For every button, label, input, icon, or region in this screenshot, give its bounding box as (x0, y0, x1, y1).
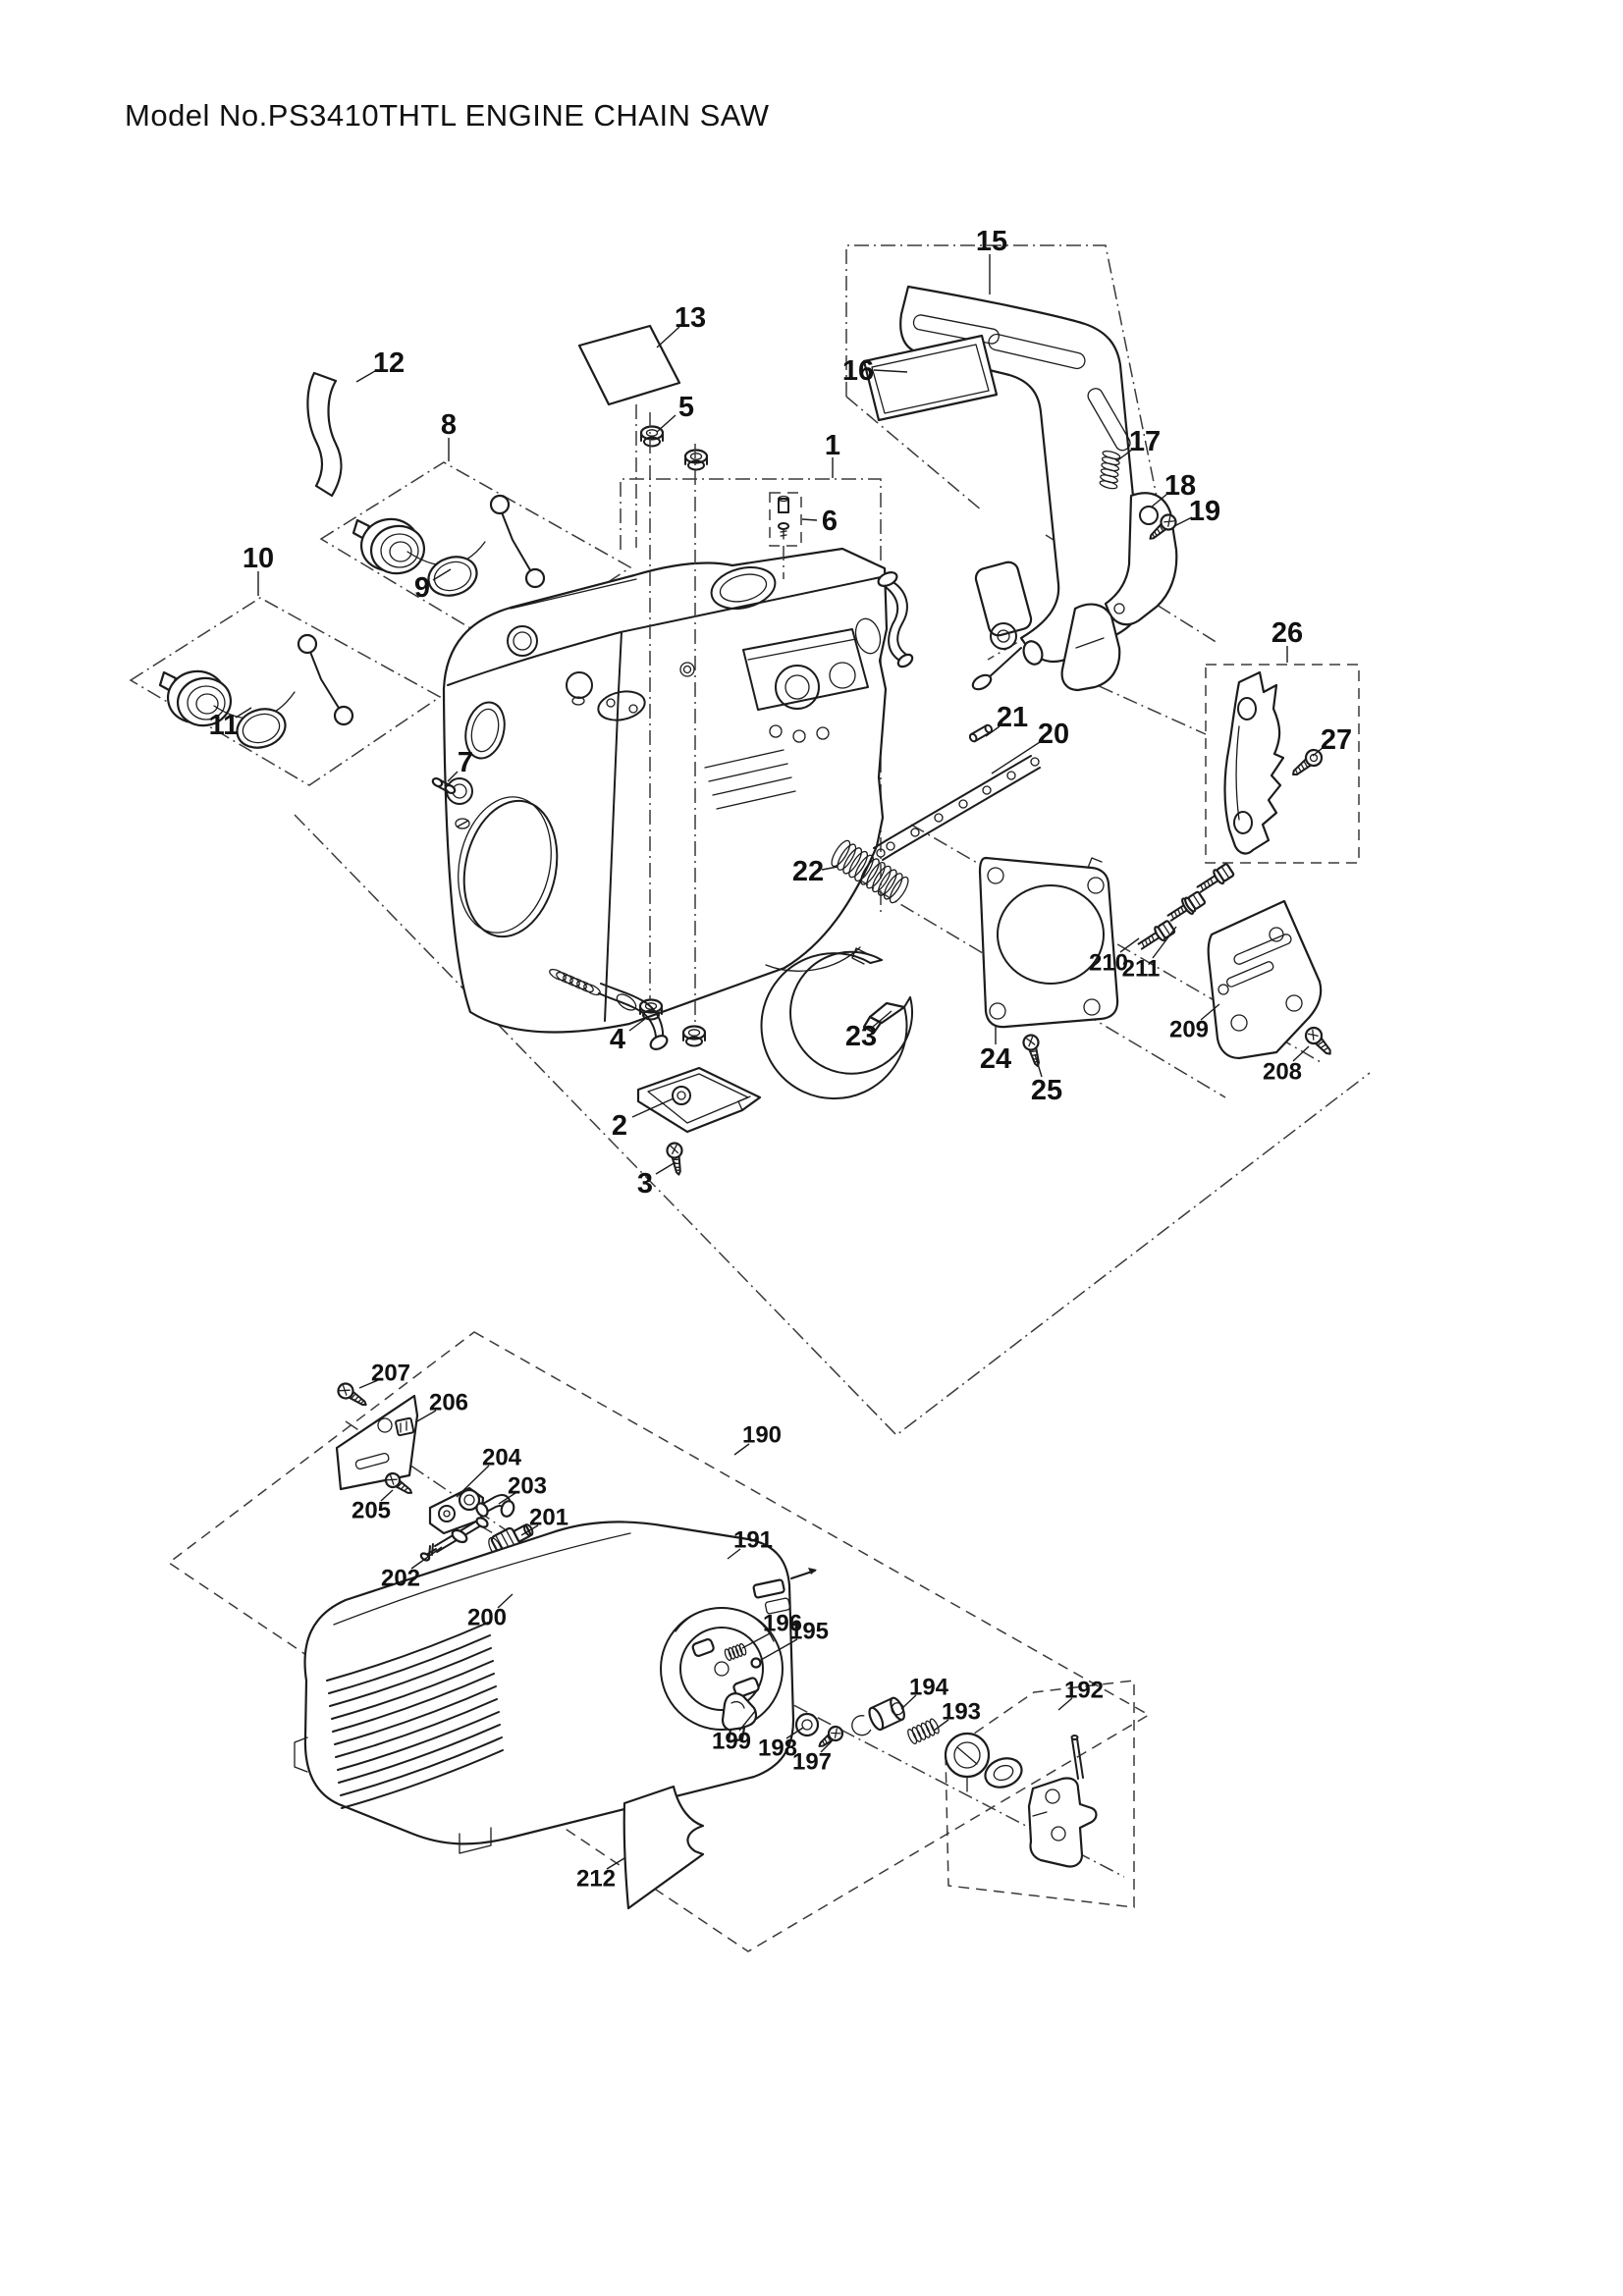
part-label-211: 211 (1122, 955, 1161, 982)
part-leader-5 (657, 415, 676, 432)
clutch-cover-191 (295, 1522, 817, 1853)
part-label-1: 1 (825, 430, 840, 461)
parts-diagram-page: Model No.PS3410THTL ENGINE CHAIN SAW (0, 0, 1623, 2296)
part-label-23: 23 (845, 1021, 877, 1052)
part-label-2: 2 (612, 1110, 627, 1142)
part-label-12: 12 (373, 347, 405, 379)
cover-panel-212 (624, 1787, 703, 1908)
part-label-207: 207 (371, 1360, 410, 1386)
washer-198 (796, 1714, 818, 1735)
part-label-193: 193 (942, 1698, 981, 1725)
part-label-199: 199 (712, 1728, 751, 1754)
part-label-200: 200 (467, 1604, 507, 1630)
part-label-203: 203 (508, 1472, 547, 1499)
part-label-20: 20 (1038, 719, 1069, 750)
part-label-13: 13 (675, 302, 706, 334)
part-label-202: 202 (381, 1565, 420, 1591)
guide-plate-209 (1209, 901, 1322, 1058)
adjuster-plate-206 (337, 1396, 417, 1489)
brake-band-23 (762, 948, 913, 1098)
part-label-196: 196 (763, 1610, 802, 1636)
part-label-24: 24 (980, 1043, 1011, 1075)
spring-193 (906, 1718, 941, 1745)
part-label-5: 5 (678, 392, 694, 423)
part-label-190: 190 (742, 1421, 782, 1448)
part-label-206: 206 (429, 1389, 468, 1415)
part-label-27: 27 (1321, 724, 1352, 756)
part-label-22: 22 (792, 856, 824, 887)
inner-plate-24 (980, 858, 1117, 1027)
ball-195 (752, 1659, 761, 1668)
screw-3 (666, 1142, 685, 1176)
part-label-19: 19 (1189, 496, 1220, 527)
part-label-4: 4 (610, 1024, 625, 1055)
part-label-201: 201 (529, 1504, 568, 1530)
part-label-17: 17 (1129, 426, 1161, 457)
fuel-cap-9 (353, 496, 544, 602)
screw-27 (1288, 747, 1325, 780)
grommet-5b (685, 451, 707, 470)
part-label-25: 25 (1031, 1075, 1062, 1106)
part-label-194: 194 (909, 1674, 949, 1700)
guard-plate-2 (638, 1068, 760, 1132)
screw-25 (1022, 1034, 1045, 1068)
part-label-26: 26 (1271, 617, 1303, 649)
tensioner-192 (946, 1734, 1097, 1866)
part-label-10: 10 (243, 543, 274, 574)
part-label-205: 205 (352, 1497, 391, 1523)
part-label-11: 11 (209, 710, 240, 741)
part-label-197: 197 (792, 1748, 832, 1775)
spike-bumper-26 (1225, 672, 1284, 853)
part-label-198: 198 (758, 1735, 797, 1761)
part-leader-3 (656, 1162, 676, 1174)
diagram-canvas: Model No.PS3410THTL ENGINE CHAIN SAW (0, 0, 1623, 2296)
part-label-21: 21 (997, 702, 1028, 733)
screw-197 (815, 1724, 845, 1751)
grommet-4b (683, 1027, 705, 1046)
part-label-8: 8 (441, 409, 457, 441)
bolt-211b (1195, 863, 1235, 896)
part-label-7: 7 (458, 747, 473, 778)
part-label-6: 6 (822, 506, 838, 537)
page-title: Model No.PS3410THTL ENGINE CHAIN SAW (125, 98, 770, 133)
part-leader-6 (802, 519, 817, 520)
vent-valve-6 (779, 497, 788, 540)
deflector-strip-12 (307, 373, 341, 496)
part-label-15: 15 (976, 226, 1007, 257)
part-label-192: 192 (1064, 1677, 1104, 1703)
part-label-212: 212 (576, 1865, 616, 1892)
box-15-tail (846, 397, 982, 510)
part-label-191: 191 (733, 1526, 773, 1553)
part-label-204: 204 (482, 1444, 522, 1470)
caution-label-13 (579, 326, 679, 404)
saw-chain-20 (874, 756, 1040, 860)
part-label-9: 9 (414, 572, 430, 604)
part-label-208: 208 (1263, 1058, 1302, 1085)
nut-194 (848, 1695, 908, 1739)
adjuster-bracket-204 (430, 1488, 483, 1533)
bolt-211 (1164, 889, 1207, 925)
part-label-16: 16 (842, 355, 874, 387)
fuel-cap-11 (160, 635, 352, 754)
part-label-209: 209 (1169, 1016, 1209, 1042)
part-label-3: 3 (637, 1168, 653, 1200)
